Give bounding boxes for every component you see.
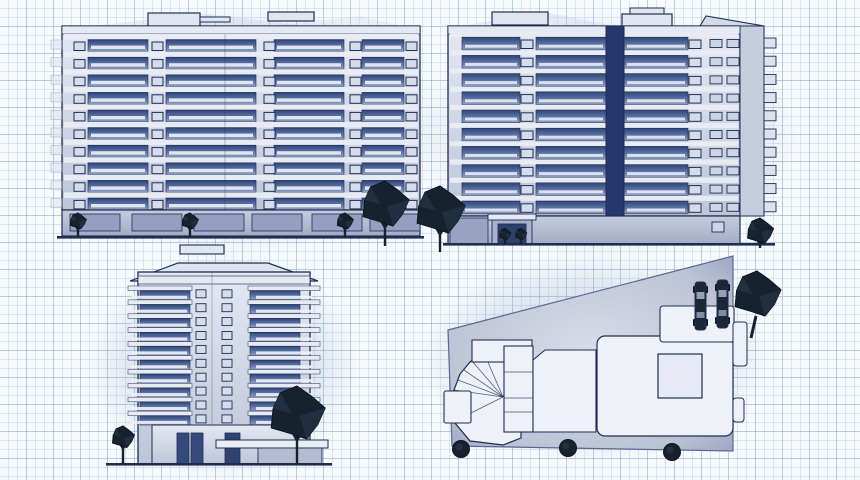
window	[406, 77, 417, 86]
window-band	[536, 37, 606, 50]
window	[710, 185, 722, 193]
window-band	[462, 183, 520, 196]
window	[350, 60, 361, 69]
tree	[664, 444, 681, 461]
window	[406, 165, 417, 174]
window	[406, 130, 417, 139]
floor-slab	[64, 87, 418, 93]
window	[196, 332, 206, 340]
floor-slab	[450, 68, 738, 73]
window	[710, 40, 722, 48]
window	[350, 77, 361, 86]
window	[74, 165, 85, 174]
window-band	[462, 146, 520, 159]
window	[521, 204, 533, 213]
balcony-slab	[248, 342, 320, 347]
gable-roof	[700, 16, 764, 26]
window-band	[624, 183, 688, 196]
window	[264, 95, 275, 104]
window	[727, 58, 739, 66]
window	[710, 112, 722, 120]
side-balcony-tab	[51, 110, 62, 119]
window	[152, 112, 163, 121]
window	[689, 95, 701, 104]
window	[521, 40, 533, 49]
window	[689, 149, 701, 158]
window	[222, 387, 232, 395]
car-top-view	[715, 280, 730, 328]
view-front-elevation	[51, 12, 424, 246]
window-band	[624, 110, 688, 123]
window	[710, 167, 722, 175]
window	[710, 76, 722, 84]
balcony-slab	[248, 314, 320, 319]
window-band	[274, 57, 344, 69]
window	[727, 76, 739, 84]
side-balcony-tab	[51, 181, 62, 190]
window-band	[462, 128, 520, 141]
window-band	[536, 165, 606, 178]
side-balcony-tab	[51, 198, 62, 207]
window	[264, 130, 275, 139]
window	[406, 42, 417, 51]
side-balcony-tab	[764, 38, 776, 48]
window-band	[462, 55, 520, 68]
window-band	[536, 110, 606, 123]
side-balcony-tab	[764, 165, 776, 175]
window	[74, 95, 85, 104]
window	[222, 359, 232, 367]
window	[727, 203, 739, 211]
window-band	[462, 165, 520, 178]
window	[689, 204, 701, 213]
rooftop-structure	[622, 14, 672, 27]
window	[350, 183, 361, 192]
balcony-slab	[128, 397, 192, 402]
blueprint-canvas	[0, 0, 860, 480]
window	[689, 186, 701, 195]
window-band	[362, 57, 404, 69]
side-balcony-tab	[51, 163, 62, 172]
window	[406, 112, 417, 121]
window	[406, 95, 417, 104]
window-band	[462, 201, 520, 214]
floor-slab	[450, 87, 738, 92]
window	[222, 345, 232, 353]
window	[727, 40, 739, 48]
door	[191, 433, 203, 464]
window	[350, 130, 361, 139]
floor-slab	[450, 159, 738, 164]
balcony-slab	[248, 328, 320, 333]
window	[727, 167, 739, 175]
balcony-slab	[128, 356, 192, 361]
window-band	[166, 57, 256, 69]
floor-slab	[64, 140, 418, 146]
balcony-slab	[128, 314, 192, 319]
window-band	[624, 92, 688, 105]
scene-svg	[0, 0, 860, 480]
window-band	[536, 55, 606, 68]
window-band	[462, 74, 520, 87]
window-band	[536, 146, 606, 159]
balcony-slab	[128, 342, 192, 347]
floor-slab	[64, 175, 418, 181]
window	[222, 373, 232, 381]
window	[521, 186, 533, 195]
balcony-slab	[248, 369, 320, 374]
floor-slab	[64, 192, 418, 198]
entrance-canopy	[488, 214, 536, 220]
window	[689, 40, 701, 49]
window	[727, 112, 739, 120]
floor-slab	[450, 141, 738, 146]
window	[152, 95, 163, 104]
balcony-slab	[128, 328, 192, 333]
door	[177, 433, 189, 464]
floor-slab	[450, 105, 738, 110]
window-band	[536, 128, 606, 141]
window-band	[624, 146, 688, 159]
window	[152, 165, 163, 174]
window	[196, 401, 206, 409]
window	[74, 60, 85, 69]
window	[222, 332, 232, 340]
window	[74, 42, 85, 51]
roof-block	[504, 346, 533, 432]
floor-slab	[64, 69, 418, 75]
view-end-elevation	[106, 245, 332, 466]
rooftop-structure	[268, 12, 314, 21]
ground-panel	[132, 214, 182, 231]
window	[74, 130, 85, 139]
window	[350, 165, 361, 174]
roof-block	[733, 398, 744, 422]
rooftop-structure	[492, 12, 548, 25]
window	[521, 76, 533, 85]
window	[264, 183, 275, 192]
window	[710, 131, 722, 139]
floor-slab	[450, 123, 738, 128]
window	[521, 95, 533, 104]
window	[196, 387, 206, 395]
window	[74, 77, 85, 86]
window	[264, 60, 275, 69]
balcony-slab	[248, 383, 320, 388]
window	[710, 203, 722, 211]
roof-block	[444, 391, 471, 423]
window-band	[624, 165, 688, 178]
window	[196, 318, 206, 326]
window	[727, 131, 739, 139]
window-band	[536, 74, 606, 87]
window-band	[88, 57, 148, 69]
ground-line	[443, 243, 775, 246]
window	[264, 112, 275, 121]
window-band	[462, 92, 520, 105]
side-balcony-tab	[764, 184, 776, 194]
side-balcony-tab	[51, 40, 62, 49]
facade-stripe	[606, 26, 624, 216]
side-balcony-tab	[51, 93, 62, 102]
rooftop-structure	[148, 13, 200, 27]
window	[152, 130, 163, 139]
balcony-slab	[248, 286, 320, 291]
window	[196, 359, 206, 367]
window	[521, 113, 533, 122]
floor-slab	[450, 178, 738, 183]
window	[727, 94, 739, 102]
floor-slab	[64, 122, 418, 128]
window-band	[624, 201, 688, 214]
floor-slab	[64, 104, 418, 110]
side-balcony-tab	[764, 147, 776, 157]
window-band	[624, 74, 688, 87]
balcony-slab	[128, 369, 192, 374]
window	[222, 415, 232, 423]
car-top-view	[693, 282, 708, 330]
side-balcony-tab	[51, 75, 62, 84]
window	[406, 148, 417, 157]
window	[196, 304, 206, 312]
window	[152, 148, 163, 157]
window	[727, 149, 739, 157]
window	[521, 58, 533, 66]
window	[152, 77, 163, 86]
gable-wall	[740, 26, 764, 216]
roof-block	[733, 322, 747, 366]
side-balcony-tab	[764, 74, 776, 84]
window-band	[462, 37, 520, 50]
view-rear-elevation	[417, 8, 776, 252]
window	[222, 290, 232, 298]
window	[350, 200, 361, 209]
window	[350, 95, 361, 104]
window-band	[536, 183, 606, 196]
window	[74, 148, 85, 157]
floor-slab	[450, 196, 738, 201]
window	[689, 131, 701, 140]
window-band	[624, 37, 688, 50]
side-balcony-tab	[51, 128, 62, 137]
balcony-slab	[128, 286, 192, 291]
window	[710, 58, 722, 66]
window	[727, 185, 739, 193]
floor-slab	[64, 34, 418, 40]
floor-slab	[450, 32, 738, 37]
window	[521, 131, 533, 140]
ground-line	[57, 236, 424, 239]
ground-panel	[312, 214, 362, 231]
ground-panel	[252, 214, 302, 231]
window-band	[462, 110, 520, 123]
balcony-slab	[248, 356, 320, 361]
annex	[258, 448, 322, 464]
window	[196, 290, 206, 298]
side-balcony-tab	[764, 93, 776, 103]
window	[74, 200, 85, 209]
window	[222, 401, 232, 409]
window	[152, 42, 163, 51]
window-band	[536, 92, 606, 105]
window-band	[624, 128, 688, 141]
window	[350, 148, 361, 157]
floor-slab	[64, 52, 418, 58]
window	[264, 148, 275, 157]
side-balcony-tab	[764, 111, 776, 121]
ground-panel	[194, 214, 244, 231]
balcony-slab	[128, 411, 192, 416]
window-band	[624, 55, 688, 68]
balcony-slab	[128, 300, 192, 305]
entrance-canopy	[216, 440, 328, 448]
side-balcony-tab	[51, 58, 62, 67]
window	[152, 183, 163, 192]
window	[689, 58, 701, 66]
window	[264, 42, 275, 51]
window	[689, 113, 701, 122]
window	[264, 77, 275, 86]
window	[264, 200, 275, 209]
window	[406, 183, 417, 192]
window	[264, 165, 275, 174]
tree	[560, 440, 577, 457]
window	[222, 304, 232, 312]
window	[710, 94, 722, 102]
side-balcony-tab	[764, 202, 776, 212]
window	[710, 149, 722, 157]
window	[196, 345, 206, 353]
window	[521, 149, 533, 158]
rooftop-structure	[180, 245, 224, 254]
floor-slab	[64, 157, 418, 163]
floor-slab	[450, 50, 738, 55]
side-balcony-tab	[764, 56, 776, 66]
window	[152, 200, 163, 209]
window	[196, 373, 206, 381]
side-balcony-tab	[51, 146, 62, 155]
window	[74, 183, 85, 192]
roof-courtyard	[658, 354, 702, 398]
balcony-slab	[128, 383, 192, 388]
balcony-slab	[248, 300, 320, 305]
window	[521, 167, 533, 176]
window	[406, 60, 417, 69]
window	[689, 167, 701, 176]
tree	[453, 441, 470, 458]
window	[350, 42, 361, 51]
window-band	[536, 201, 606, 214]
window	[196, 415, 206, 423]
window	[152, 60, 163, 69]
window	[689, 76, 701, 85]
side-balcony-tab	[764, 129, 776, 139]
window	[74, 112, 85, 121]
window	[350, 112, 361, 121]
window	[222, 318, 232, 326]
roof-block	[533, 350, 596, 432]
